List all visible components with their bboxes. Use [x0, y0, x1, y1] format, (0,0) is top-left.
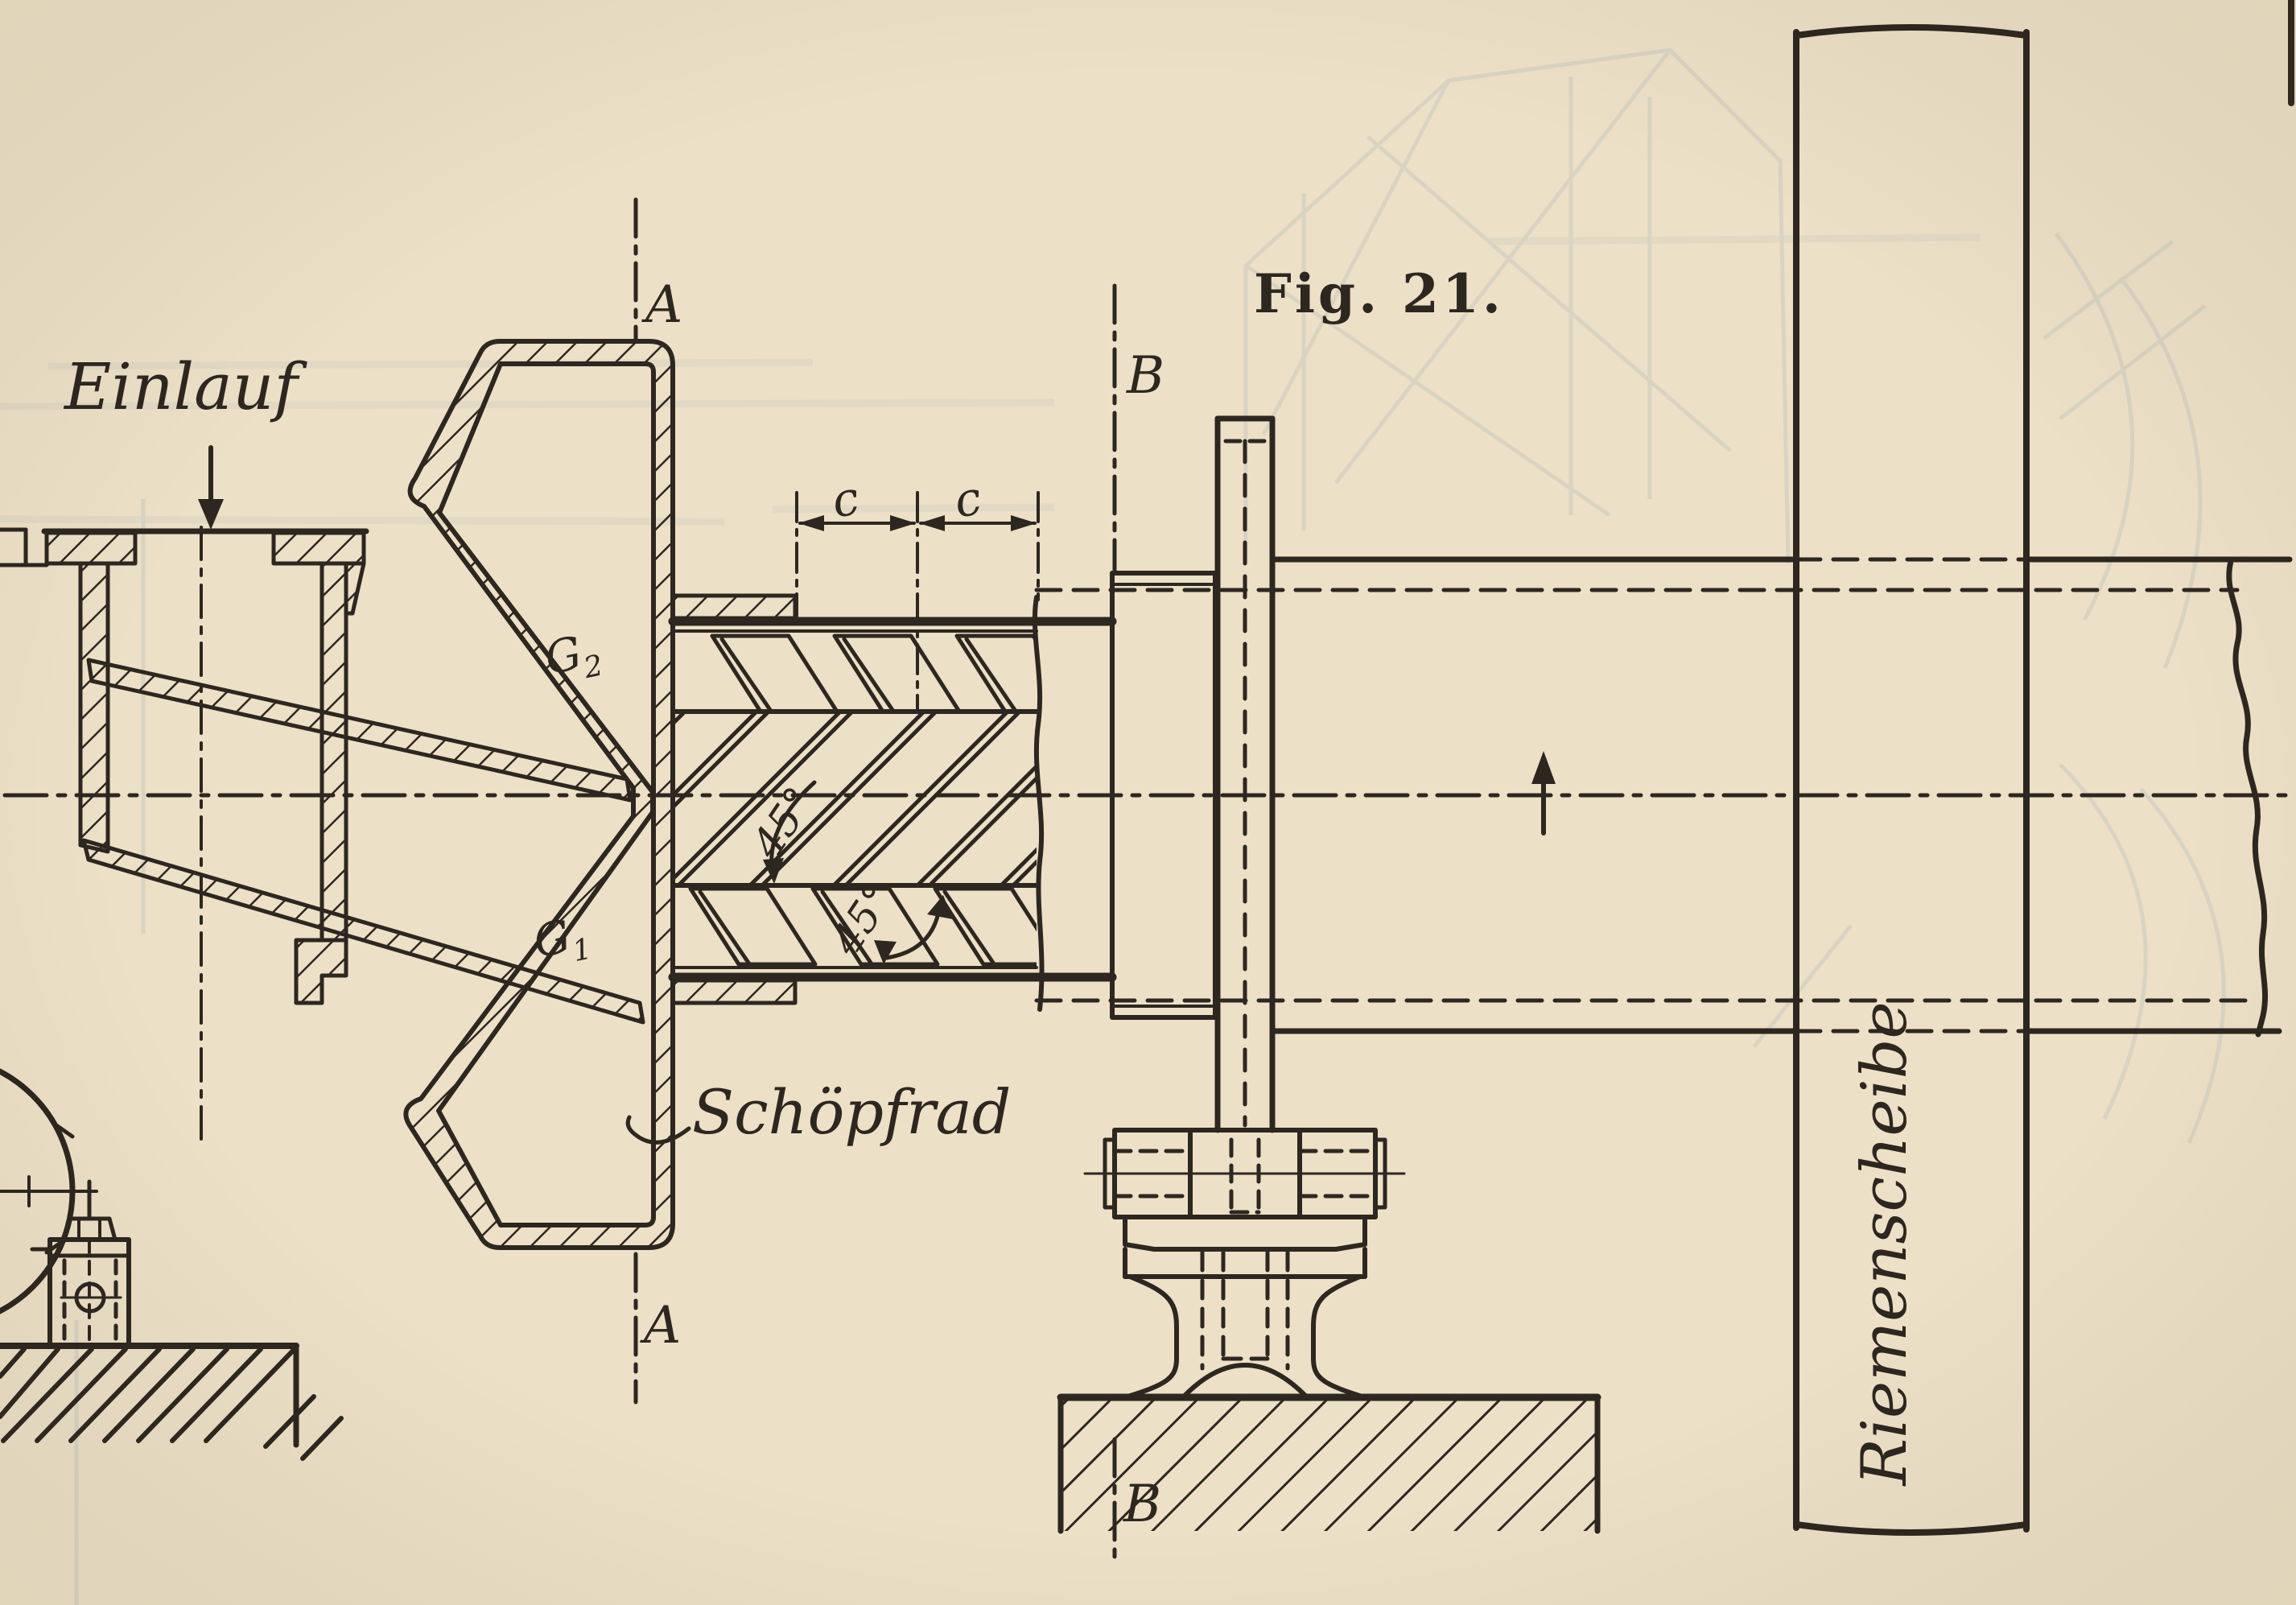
paper-vignette [0, 0, 2296, 1605]
figure-21-drawing: Fig. 21. Einlauf Schöpfrad Riemenscheibe… [0, 0, 2296, 1605]
scanned-page: Fig. 21. Einlauf Schöpfrad Riemenscheibe… [0, 0, 2296, 1605]
